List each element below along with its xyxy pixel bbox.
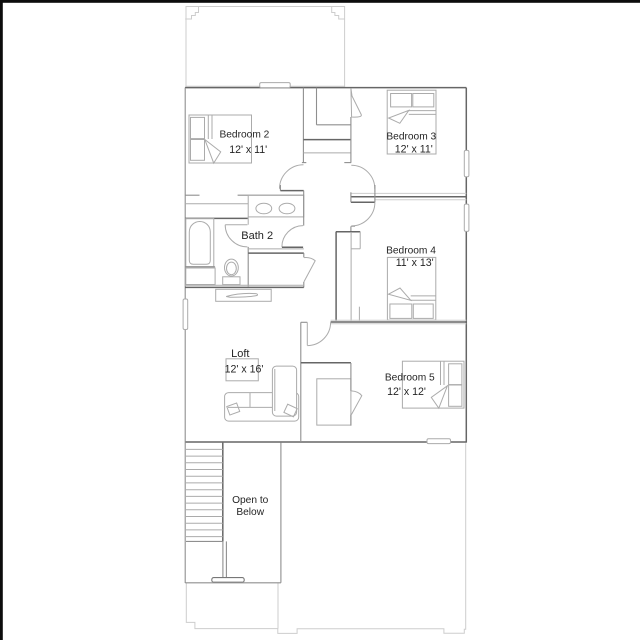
svg-text:Bedroom 5: Bedroom 5 bbox=[385, 373, 435, 384]
svg-text:12' x 16': 12' x 16' bbox=[225, 364, 264, 376]
svg-text:11' x 13': 11' x 13' bbox=[396, 257, 434, 269]
svg-text:Bedroom 2: Bedroom 2 bbox=[219, 130, 269, 141]
svg-text:12' x 11': 12' x 11' bbox=[229, 144, 267, 156]
svg-text:Bath 2: Bath 2 bbox=[241, 230, 273, 242]
svg-text:Open to: Open to bbox=[232, 495, 269, 506]
svg-text:Bedroom 4: Bedroom 4 bbox=[386, 245, 436, 256]
svg-text:12' x 12': 12' x 12' bbox=[387, 386, 426, 398]
svg-text:Below: Below bbox=[236, 507, 264, 518]
svg-text:12' x 11': 12' x 11' bbox=[395, 144, 433, 156]
svg-text:Bedroom 3: Bedroom 3 bbox=[386, 131, 436, 142]
